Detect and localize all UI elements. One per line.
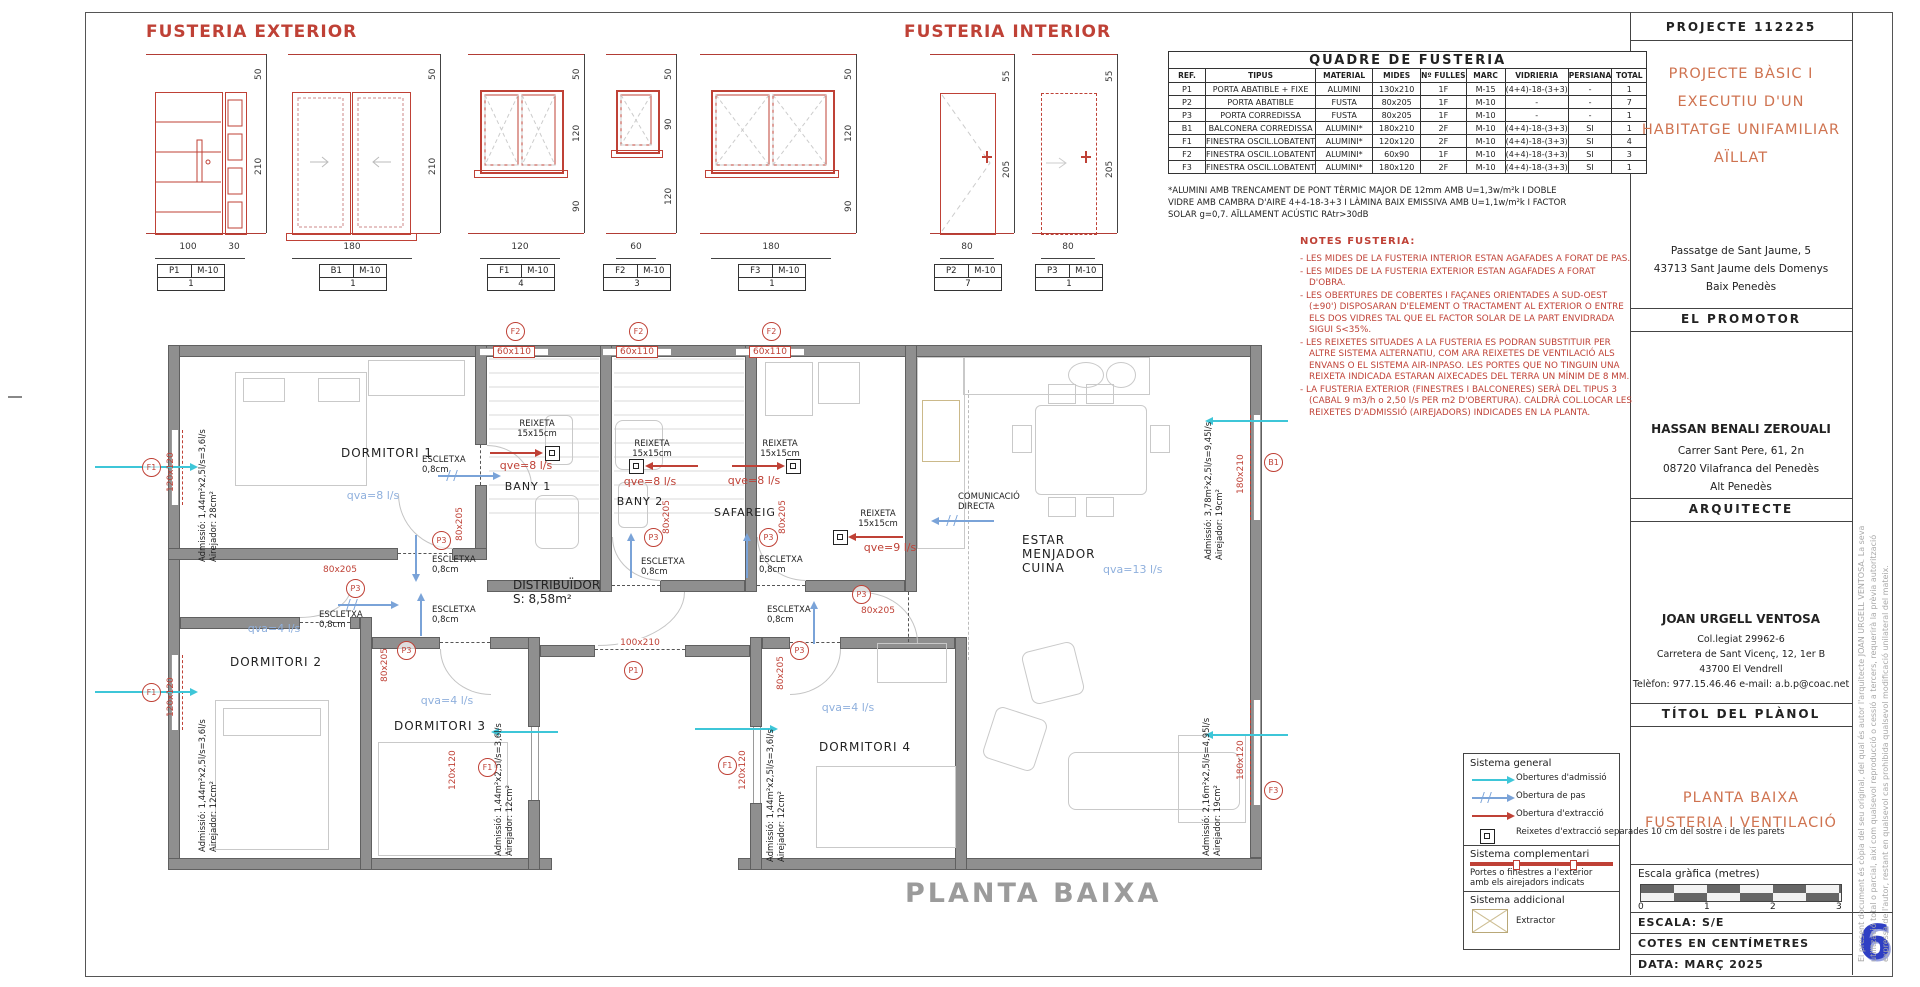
- arquitecte-info-line: Carretera de Sant Vicenç, 12, 1er B: [1630, 647, 1852, 662]
- quadre-cell: 130x210: [1373, 83, 1421, 96]
- tag-p3-dorm4: P3: [790, 641, 809, 660]
- quadre-cell: 1F: [1421, 96, 1466, 109]
- airejador-line: Airejador: 12cm²: [505, 723, 516, 856]
- disclaimer-line: expressa de l'autor, restant en qualsevo…: [1880, 526, 1892, 962]
- legend-general-items: Obertures d'admissióObertura de pasObert…: [1464, 773, 1619, 841]
- plate-p3: P3M-101: [1035, 264, 1103, 291]
- quadre-header-cell: MARC: [1466, 69, 1505, 83]
- copyright-disclaimer: El present document és còpia del seu ori…: [1856, 526, 1892, 962]
- qve-bany2: qve=8 l/s: [624, 475, 676, 488]
- hdim: [1041, 258, 1095, 259]
- dim-line: [468, 54, 584, 55]
- notes-fusteria-list: - LES MIDES DE LA FUSTERIA INTERIOR ESTA…: [1300, 254, 1632, 420]
- wall-notch-left-b: [528, 800, 540, 870]
- quadre-header-cell: PERSIANA: [1568, 69, 1611, 83]
- qva-dormitori2: qva=4 l/s: [248, 622, 300, 635]
- reixeta-size: 15x15cm: [517, 430, 557, 440]
- project-address-line: 43713 Sant Jaume dels Domenys: [1630, 260, 1852, 278]
- promotor-address-line: Carrer Sant Pere, 61, 2n: [1630, 442, 1852, 460]
- legend-item: Obertura de pas: [1470, 791, 1613, 805]
- pillow: [223, 708, 321, 736]
- scale-tick-1: 1: [1704, 902, 1710, 912]
- airejador-line: Airejador: 28cm²: [209, 429, 220, 562]
- admissio-dorm1: Admissió: 1,44m²x2,5l/s=3,6l/sAirejador:…: [198, 429, 220, 562]
- quadre-cell: (4+4)-18-(3+3): [1505, 148, 1568, 161]
- wall-notch-top-b: [685, 645, 750, 657]
- pas-arrow-dorm1: [415, 535, 417, 575]
- quadre-de-fusteria-table: QUADRE DE FUSTERIAREF.TIPUSMATERIALMIDES…: [1168, 51, 1647, 174]
- size-80x205-dorm3: 80x205: [380, 648, 390, 682]
- room-dormitori4: DORMITORI 4: [819, 740, 911, 754]
- tag-p3-dorm1: P3: [432, 531, 451, 550]
- dim-80: 80: [961, 242, 972, 252]
- window-f1-dorm3: [531, 727, 539, 800]
- wall-top: [168, 345, 1262, 357]
- scale-tick-2: 2: [1770, 902, 1776, 912]
- size-80x205-dorm2: 80x205: [323, 565, 357, 575]
- escletxa-size: 0,8cm: [432, 566, 476, 576]
- quadre-cell: 60x90: [1373, 148, 1421, 161]
- project-title-line: HABITATGE UNIFAMILIAR: [1630, 116, 1852, 144]
- tag-f2-1: F2: [506, 322, 525, 341]
- vdim: [1014, 54, 1015, 233]
- extraction-arrow-bany2: [652, 465, 698, 467]
- plate-p1: P1M-101: [157, 264, 225, 291]
- escletxa-size: 0,8cm: [422, 466, 466, 476]
- tb-line: [1630, 933, 1852, 934]
- wall-safareig-cuina: [905, 345, 917, 592]
- p1-door-rails: [155, 92, 221, 233]
- notes-item: - LES OBERTURES DE COBERTES I FAÇANES OR…: [1300, 291, 1632, 337]
- size-80x205-dorm4: 80x205: [776, 656, 786, 690]
- size-80x205-dorm1: 80x205: [455, 507, 465, 541]
- notes-item: - LES MIDES DE LA FUSTERIA INTERIOR ESTA…: [1300, 254, 1632, 266]
- left-edge-tick: [8, 396, 22, 398]
- airejador-line: Airejador: 12cm²: [777, 729, 788, 862]
- tag-p3-safareig: P3: [759, 528, 778, 547]
- vdim: [440, 54, 441, 233]
- f2-glazing: [616, 90, 656, 150]
- dim-30: 30: [228, 242, 239, 252]
- dim-60: 60: [630, 242, 641, 252]
- bed-dorm4: [816, 766, 956, 848]
- notes-item: - LES MIDES DE LA FUSTERIA EXTERIOR ESTA…: [1300, 267, 1632, 290]
- fusteria-exterior-title: FUSTERIA EXTERIOR: [146, 22, 357, 42]
- estar-line2: MENJADOR: [1022, 547, 1095, 561]
- tag-f3-estar: F3: [1264, 781, 1283, 800]
- drawing-sheet: FUSTERIA EXTERIOR FUSTERIA INTERIOR 50 2…: [0, 0, 1920, 987]
- legend-extractor-label: Extractor: [1516, 916, 1555, 926]
- legend-item: Reixetes d'extracció separades 10 cm del…: [1470, 827, 1613, 841]
- dim-210: 210: [254, 158, 264, 175]
- wall-bany1-bany2: [600, 345, 612, 592]
- bany2-door-dash: [612, 585, 660, 586]
- quadre-cell: 180x120: [1373, 161, 1421, 174]
- quadre-cell: 1F: [1421, 109, 1466, 122]
- admissio-line: Admissió: 1,44m²x2,5l/s=3,6l/s: [198, 429, 209, 562]
- size-120x120-dorm3: 120x120: [448, 750, 458, 790]
- project-address-line: Baix Penedès: [1630, 278, 1852, 296]
- dim-line: [930, 54, 1014, 55]
- quadre-cell: 120x120: [1373, 135, 1421, 148]
- plate-f3: F3M-101: [738, 264, 806, 291]
- dim-120: 120: [844, 125, 854, 142]
- tag-p3-bany2: P3: [644, 528, 663, 547]
- quadre-cell: 80x205: [1373, 109, 1421, 122]
- project-title-line: PROJECTE BÀSIC I: [1630, 60, 1852, 88]
- arquitecte-info: Col.legiat 29962-6 Carretera de Sant Vic…: [1630, 632, 1852, 692]
- base-line: [606, 233, 676, 234]
- project-address-line: Passatge de Sant Jaume, 5: [1630, 242, 1852, 260]
- escletxa-size: 0,8cm: [759, 566, 803, 576]
- reixeta-bany2: REIXETA15x15cm: [632, 440, 672, 459]
- wall-dorm2-dorm3: [360, 617, 372, 870]
- dim-line: [606, 54, 676, 55]
- dim-50: 50: [572, 69, 582, 80]
- vdim: [266, 54, 267, 233]
- airejador-line: Airejador: 19cm²: [1215, 422, 1226, 560]
- base-line: [468, 233, 584, 234]
- quadre-cell: F2: [1169, 148, 1206, 161]
- dim-120b: 120: [511, 242, 528, 252]
- quadre-cell: PORTA ABATIBLE + FIXE: [1206, 83, 1316, 96]
- scale-bar-top: [1641, 885, 1841, 893]
- comunicacio-line1: COMUNICACIÓ: [958, 492, 1020, 502]
- qva-dormitori4: qva=4 l/s: [822, 701, 874, 714]
- pillow: [243, 378, 285, 402]
- window-f3-estar: [1253, 700, 1261, 805]
- quadre-cell: -: [1505, 109, 1568, 122]
- escletxa-size: 0,8cm: [319, 621, 363, 631]
- estar-line3: CUINA: [1022, 561, 1095, 575]
- quadre-header-cell: Nº FULLES: [1421, 69, 1466, 83]
- promotor-address-line: Alt Penedès: [1630, 478, 1852, 496]
- quadre-cell: ALUMINI*: [1316, 122, 1373, 135]
- wall-bottom-right: [738, 858, 1262, 870]
- tb-line: [1630, 498, 1852, 499]
- tag-p1-entrance: P1: [624, 661, 643, 680]
- size-180x120-f3: 180x120: [1236, 740, 1246, 780]
- size-120x120-dorm2: 120x120: [166, 677, 176, 717]
- quadre-footnote-line: VIDRE AMB CAMBRA D'AIRE 4+4-18-3+3 I LÀM…: [1168, 197, 1638, 209]
- hdim: [155, 258, 245, 259]
- f3-sill: [705, 170, 839, 178]
- dim-120: 120: [572, 125, 582, 142]
- reixeta-bany1: REIXETA15x15cm: [517, 420, 557, 439]
- f1-glazing: [480, 90, 560, 170]
- quadre-cell: 1F: [1421, 83, 1466, 96]
- quadre-header-cell: REF.: [1169, 69, 1206, 83]
- window-f3-dash: [1250, 700, 1251, 805]
- quadre-cell: (4+4)-18-(3+3): [1505, 83, 1568, 96]
- tag-p3-estar: P3: [852, 585, 871, 604]
- distribuidor-line2: S: 8,58m²: [513, 592, 600, 606]
- size-80x205-safareig: 80x205: [778, 500, 788, 534]
- tag-f2-2: F2: [629, 322, 648, 341]
- airejador-line: Airejador: 12cm²: [209, 719, 220, 852]
- project-title: PROJECTE BÀSIC I EXECUTIU D'UN HABITATGE…: [1630, 60, 1852, 172]
- extraction-arrow-icon: [1470, 809, 1516, 823]
- dim-line: [146, 54, 266, 55]
- quadre-cell: F3: [1169, 161, 1206, 174]
- quadre-cell: ALUMINI*: [1316, 135, 1373, 148]
- distribuidor-line1: DISTRIBUÏDOR: [513, 578, 600, 592]
- arquitecte-header: ARQUITECTE: [1630, 502, 1852, 516]
- dim-50: 50: [844, 69, 854, 80]
- b1-sill: [286, 233, 417, 241]
- quadre-cell: SI: [1568, 148, 1611, 161]
- tb-line: [1630, 40, 1852, 41]
- dim-120: 120: [664, 188, 674, 205]
- size-180x210-b1: 180x210: [1236, 454, 1246, 494]
- dim-205: 205: [1002, 161, 1012, 178]
- pas-arrow-comunicacio: [938, 520, 994, 522]
- estar-door-dash: [908, 592, 909, 642]
- dim-55: 55: [1002, 71, 1012, 82]
- escletxa-size: 0,8cm: [767, 616, 811, 626]
- p2-swing: [940, 93, 994, 233]
- size-120x120-dorm4: 120x120: [738, 750, 748, 790]
- tag-f1-dorm1: F1: [142, 458, 161, 477]
- reixeta-size: 15x15cm: [760, 450, 800, 460]
- quadre-cell: M-15: [1466, 83, 1505, 96]
- dim-50: 50: [428, 69, 438, 80]
- p1-fixe-panes: [225, 92, 245, 233]
- wall-banys-south-b: [660, 580, 745, 592]
- chair: [1048, 497, 1076, 517]
- escala-grafica-label: Escala gràfica (metres): [1638, 868, 1760, 880]
- window-b1-estar: [1253, 415, 1261, 520]
- quadre-cell: M-10: [1466, 109, 1505, 122]
- quadre-cell: SI: [1568, 135, 1611, 148]
- quadre-row: F2FINESTRA OSCIL.LOBATENTALUMINI*60x901F…: [1169, 148, 1647, 161]
- escletxa-dorm2: ESCLETXA0,8cm: [319, 611, 363, 630]
- dim-line: [700, 54, 856, 55]
- quadre-footnote: *ALUMINI AMB TRENCAMENT DE PONT TÈRMIC M…: [1168, 185, 1638, 221]
- qve-cuina: qve=9 l/s: [864, 541, 916, 554]
- comunicacio-directa-label: COMUNICACIÓDIRECTA: [958, 492, 1020, 512]
- hdim: [616, 258, 656, 259]
- quadre-row: P2PORTA ABATIBLEFUSTA80x2051FM-10--7: [1169, 96, 1647, 109]
- project-address: Passatge de Sant Jaume, 5 43713 Sant Jau…: [1630, 242, 1852, 296]
- quadre-cell: FINESTRA OSCIL.LOBATENT: [1206, 161, 1316, 174]
- dim-line: [1032, 54, 1117, 55]
- dorm1-door-dash: [398, 553, 452, 554]
- plan-title-line: FUSTERIA I VENTILACIÓ: [1630, 811, 1852, 836]
- project-title-line: EXECUTIU D'UN: [1630, 88, 1852, 116]
- pas-arrow-dorm3: [420, 600, 422, 636]
- qva-dormitori3: qva=4 l/s: [421, 694, 473, 707]
- promotor-address-line: 08720 Vilafranca del Penedès: [1630, 460, 1852, 478]
- disclaimer-divider: [1852, 12, 1853, 975]
- plate-f1: F1M-104: [487, 264, 555, 291]
- quadre-header-cell: MATERIAL: [1316, 69, 1373, 83]
- disclaimer-line: El present document és còpia del seu ori…: [1856, 526, 1868, 962]
- quadre-cell: M-10: [1466, 96, 1505, 109]
- quadre-cell: 2F: [1421, 122, 1466, 135]
- dim-50: 50: [254, 69, 264, 80]
- quadre-cell: BALCONERA CORREDISSA: [1206, 122, 1316, 135]
- dim-line: [288, 54, 440, 55]
- quadre-cell: ALUMINI*: [1316, 148, 1373, 161]
- promotor-address: Carrer Sant Pere, 61, 2n 08720 Vilafranc…: [1630, 442, 1852, 496]
- wall-dorm4-left-a: [750, 637, 762, 727]
- dim-180b: 180: [762, 242, 779, 252]
- room-estar: ESTAR MENJADOR CUINA: [1022, 533, 1095, 575]
- legend-item: Obertures d'admissió: [1470, 773, 1613, 787]
- quadre-row: B1BALCONERA CORREDISSAALUMINI*180x2102FM…: [1169, 122, 1647, 135]
- airejador-symbol: [1470, 862, 1613, 866]
- pas-arrow-dorm4: [813, 608, 815, 644]
- base-line: [700, 233, 856, 234]
- room-dormitori1: DORMITORI 1: [341, 446, 433, 460]
- quadre-cell: FUSTA: [1316, 109, 1373, 122]
- admissio-line: Admissió: 2,16m²x2,5l/s=4,95l/s: [1202, 718, 1213, 856]
- quadre-cell: P1: [1169, 83, 1206, 96]
- safareig-door-dash: [757, 585, 805, 586]
- tb-line: [1630, 521, 1852, 522]
- dim-210: 210: [428, 158, 438, 175]
- admissio-estar-nord: Admissió: 3,78m²x2,5l/s=9,45l/sAirejador…: [1204, 422, 1226, 560]
- quadre-title: QUADRE DE FUSTERIA: [1169, 52, 1647, 69]
- admissio-dorm2: Admissió: 1,44m²x2,5l/s=3,6l/sAirejador:…: [198, 719, 220, 852]
- fusteria-interior-title: FUSTERIA INTERIOR: [904, 22, 1111, 42]
- wall-dorm4-left-b: [750, 803, 762, 870]
- chair: [1086, 384, 1114, 404]
- quadre-cell: (4+4)-18-(3+3): [1505, 135, 1568, 148]
- stove: [922, 400, 960, 462]
- wall-dorm4-north-a: [762, 637, 790, 649]
- estar-line1: ESTAR: [1022, 533, 1095, 547]
- quadre-cell: -: [1505, 96, 1568, 109]
- quadre-cell: M-10: [1466, 148, 1505, 161]
- entrance-gap-dash: [595, 649, 685, 650]
- quadre-cell: 2F: [1421, 161, 1466, 174]
- admissio-line: Admissió: 1,44m²x2,5l/s=3,6l/s: [494, 723, 505, 856]
- dining-table: [1035, 405, 1147, 495]
- quadre-cell: M-10: [1466, 161, 1505, 174]
- quadre-cell: SI: [1568, 161, 1611, 174]
- pillow: [318, 378, 360, 402]
- escletxa-size: 0,8cm: [641, 568, 685, 578]
- legend-item-label: Obertures d'admissió: [1516, 773, 1607, 783]
- f1-sill: [474, 170, 568, 178]
- cotes-value: COTES EN CENTÍMETRES: [1638, 937, 1809, 950]
- wall-dorm4-estar: [955, 637, 967, 870]
- pas-arrow-safareig: [746, 540, 748, 578]
- room-dormitori2: DORMITORI 2: [230, 655, 322, 669]
- quadre-cell: -: [1568, 109, 1611, 122]
- size-60x110-2: 60x110: [616, 346, 658, 358]
- hdim: [940, 258, 994, 259]
- dim-55: 55: [1105, 71, 1115, 82]
- quadre-cell: -: [1568, 96, 1611, 109]
- escletxa-dorm3: ESCLETXA0,8cm: [432, 606, 476, 625]
- reixeta-icon-bany1: [545, 446, 560, 461]
- quadre-cell: M-10: [1466, 122, 1505, 135]
- plate-f2: F2M-103: [603, 264, 671, 291]
- sink-safareig: [818, 362, 860, 404]
- reixeta-cuina: REIXETA15x15cm: [858, 510, 898, 529]
- quadre-header-cell: TIPUS: [1206, 69, 1316, 83]
- hdim: [711, 258, 831, 259]
- legend-addicional-title: Sistema addicional: [1470, 895, 1613, 906]
- promotor-name: HASSAN BENALI ZEROUALI: [1630, 422, 1852, 436]
- tag-f1-dorm2: F1: [142, 683, 161, 702]
- size-100x210-entrance: 100x210: [618, 638, 662, 648]
- projecte-header: PROJECTE 112225: [1630, 20, 1852, 34]
- disclaimer-line: utilització total o parcial, així com qu…: [1868, 526, 1880, 962]
- admission-arrow-dorm4: [695, 728, 771, 730]
- quadre-cell: ALUMINI*: [1316, 161, 1373, 174]
- tb-line: [1630, 703, 1852, 704]
- quadre-cell: 2F: [1421, 135, 1466, 148]
- wall-left: [168, 345, 180, 870]
- quadre-row: P1PORTA ABATIBLE + FIXEALUMINI130x2101FM…: [1169, 83, 1647, 96]
- arquitecte-info-line: Col.legiat 29962-6: [1630, 632, 1852, 647]
- window-b1-dash: [1250, 415, 1251, 520]
- extractor-icon: [1472, 909, 1508, 933]
- extraction-arrow-cuina: [855, 536, 903, 538]
- escletxa-safareig: ESCLETXA0,8cm: [759, 556, 803, 575]
- plan-title-line: PLANTA BAIXA: [1630, 786, 1852, 811]
- escala-value: ESCALA: S/E: [1638, 916, 1724, 929]
- qva-dormitori1: qva=8 l/s: [347, 489, 399, 502]
- admissio-line: Admissió: 1,44m²x2,5l/s=3,6l/s: [198, 719, 209, 852]
- tag-f1-dorm3: F1: [478, 758, 497, 777]
- quadre-row: F3FINESTRA OSCIL.LOBATENTALUMINI*180x120…: [1169, 161, 1647, 174]
- pas-arrow-bany1: [438, 475, 494, 477]
- legend-complementari-text: Portes o finestres a l'exterior amb els …: [1470, 868, 1613, 888]
- admissio-estar-sud: Admissió: 2,16m²x2,5l/s=4,95l/sAirejador…: [1202, 718, 1224, 856]
- desk-dorm4: [877, 643, 947, 683]
- chair: [1048, 384, 1076, 404]
- room-bany2: BANY 2: [617, 495, 664, 508]
- notes-fusteria-title: NOTES FUSTERIA:: [1300, 236, 1415, 247]
- quadre-cell: (4+4)-18-(3+3): [1505, 161, 1568, 174]
- quadre-cell: (4+4)-18-(3+3): [1505, 122, 1568, 135]
- quadre-row: F1FINESTRA OSCIL.LOBATENTALUMINI*120x120…: [1169, 135, 1647, 148]
- quadre-cell: SI: [1568, 122, 1611, 135]
- dim-80b: 80: [1062, 242, 1073, 252]
- quadre-cell: FINESTRA OSCIL.LOBATENT: [1206, 135, 1316, 148]
- legend-divider: [1464, 845, 1619, 846]
- dim-50: 50: [664, 69, 674, 80]
- size-60x110-1: 60x110: [493, 346, 535, 358]
- vdim: [584, 54, 585, 233]
- tb-line: [1630, 912, 1852, 913]
- admissio-dorm3: Admissió: 1,44m²x2,5l/s=3,6l/sAirejador:…: [494, 723, 516, 856]
- arquitecte-info-line: Telèfon: 977.15.46.46 e-mail: a.b.p@coac…: [1630, 677, 1852, 692]
- hdim: [292, 258, 412, 259]
- size-60x110-3: 60x110: [749, 346, 791, 358]
- plan-title: PLANTA BAIXA FUSTERIA I VENTILACIÓ: [1630, 786, 1852, 836]
- arquitecte-name: JOAN URGELL VENTOSA: [1630, 612, 1852, 626]
- pas-arrow-icon: [1470, 791, 1516, 805]
- dim-90: 90: [664, 119, 674, 130]
- plate-p2: P2M-107: [934, 264, 1002, 291]
- admission-arrow-icon: [1470, 773, 1516, 787]
- chair: [1150, 425, 1170, 453]
- room-safareig: SAFAREIG: [714, 506, 776, 519]
- tb-line: [1630, 331, 1852, 332]
- reixeta-icon-safareig: [786, 459, 801, 474]
- legend-item-label: Obertura de pas: [1516, 791, 1585, 801]
- wall-notch-top-a: [540, 645, 595, 657]
- quadre-cell: 80x205: [1373, 96, 1421, 109]
- reixeta-size: 15x15cm: [632, 450, 672, 460]
- legend-extractor-row: Extractor: [1470, 909, 1613, 939]
